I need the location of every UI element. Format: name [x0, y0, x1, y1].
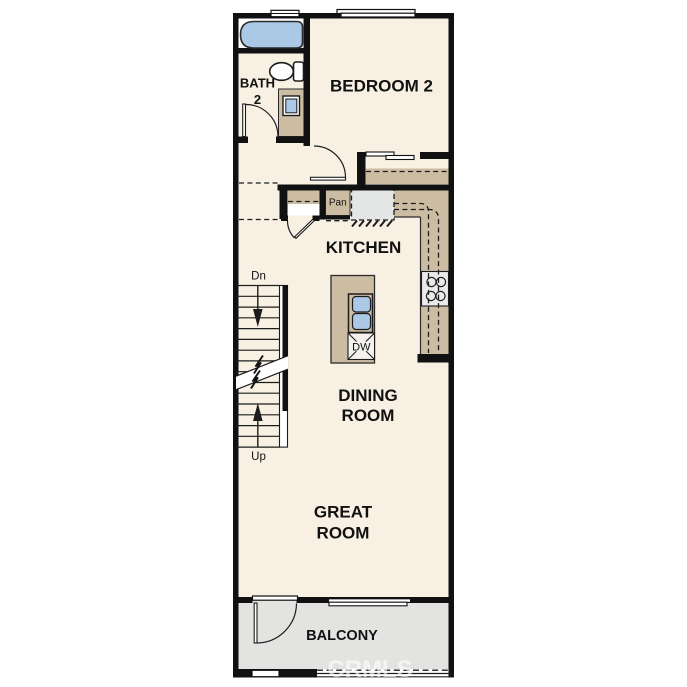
svg-text:Pan: Pan — [329, 198, 347, 209]
svg-text:BALCONY: BALCONY — [306, 628, 378, 644]
svg-text:ROOM: ROOM — [342, 406, 395, 425]
svg-text:CRMLS: CRMLS — [327, 656, 412, 683]
svg-text:2: 2 — [254, 92, 261, 107]
svg-text:KITCHEN: KITCHEN — [326, 238, 402, 257]
svg-text:BATH: BATH — [240, 76, 275, 91]
svg-text:ROOM: ROOM — [317, 524, 370, 543]
svg-text:GREAT: GREAT — [314, 503, 373, 522]
svg-text:BEDROOM 2: BEDROOM 2 — [330, 77, 433, 96]
svg-text:DINING: DINING — [338, 386, 398, 405]
svg-text:DW: DW — [352, 342, 371, 354]
svg-text:Up: Up — [251, 451, 266, 463]
svg-text:Dn: Dn — [251, 271, 266, 283]
